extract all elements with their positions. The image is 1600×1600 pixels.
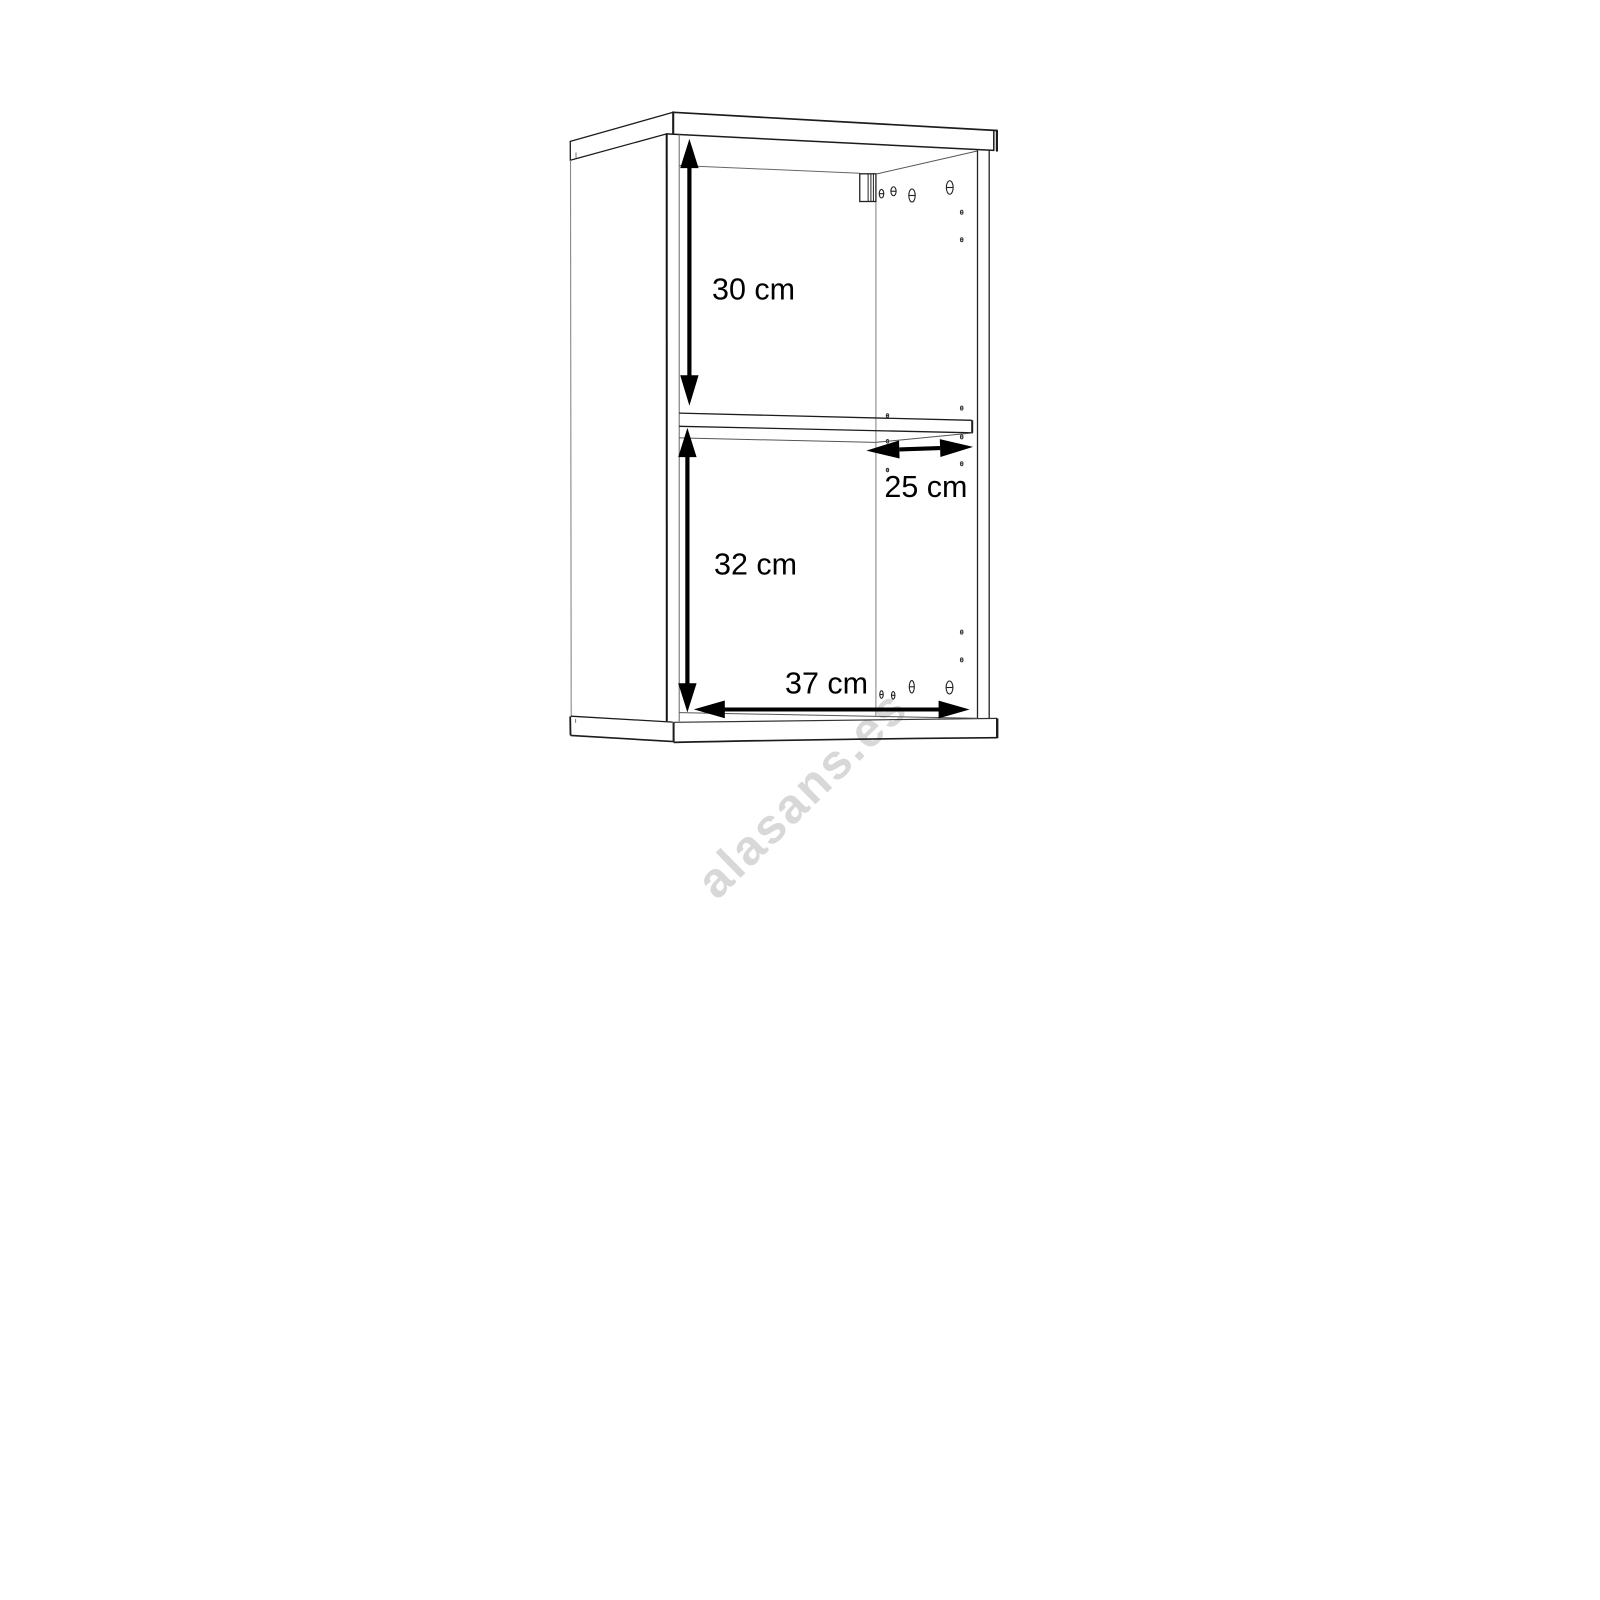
svg-text:30 cm: 30 cm xyxy=(712,273,795,307)
svg-text:32 cm: 32 cm xyxy=(714,548,797,582)
svg-text:25 cm: 25 cm xyxy=(884,470,967,504)
svg-text:37 cm: 37 cm xyxy=(785,667,868,701)
